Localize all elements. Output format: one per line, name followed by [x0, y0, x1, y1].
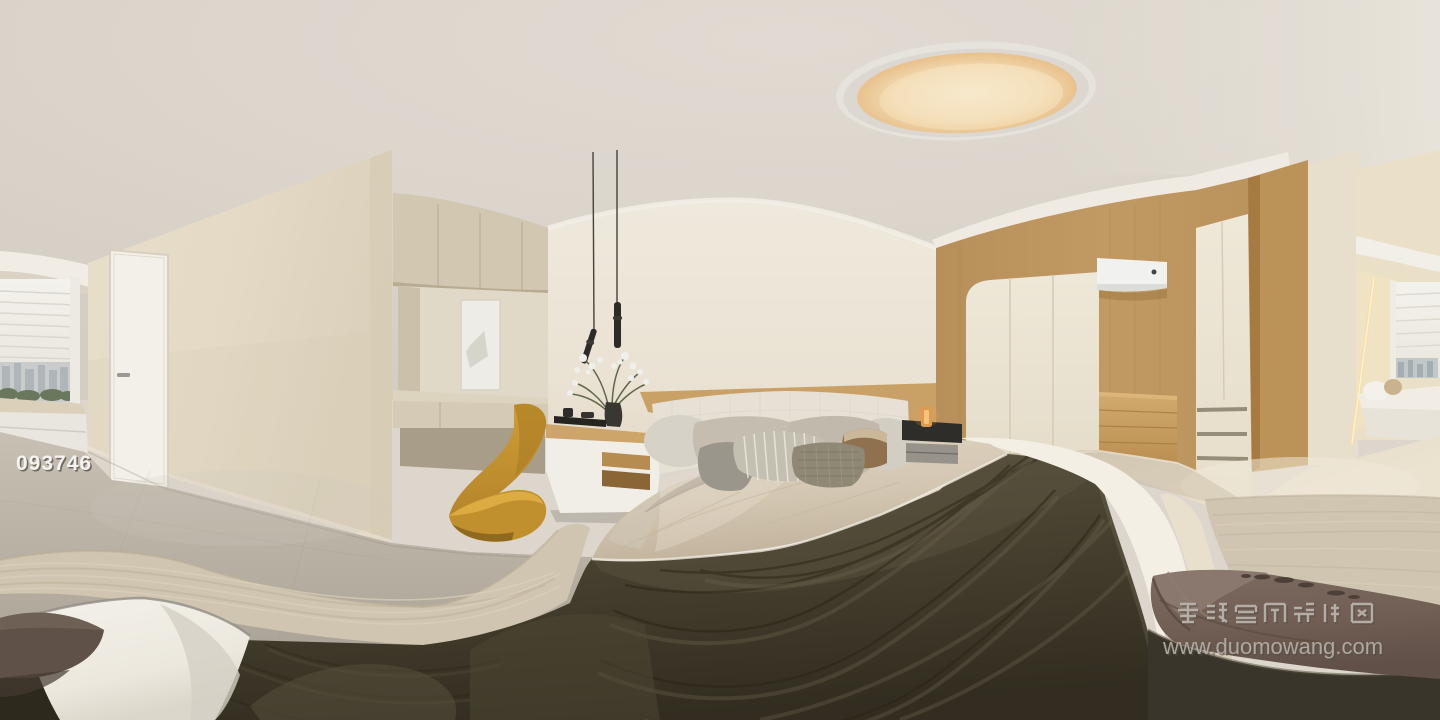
svg-text:093746: 093746 [16, 452, 92, 475]
svg-text:www.duomowang.com: www.duomowang.com [1162, 634, 1383, 659]
